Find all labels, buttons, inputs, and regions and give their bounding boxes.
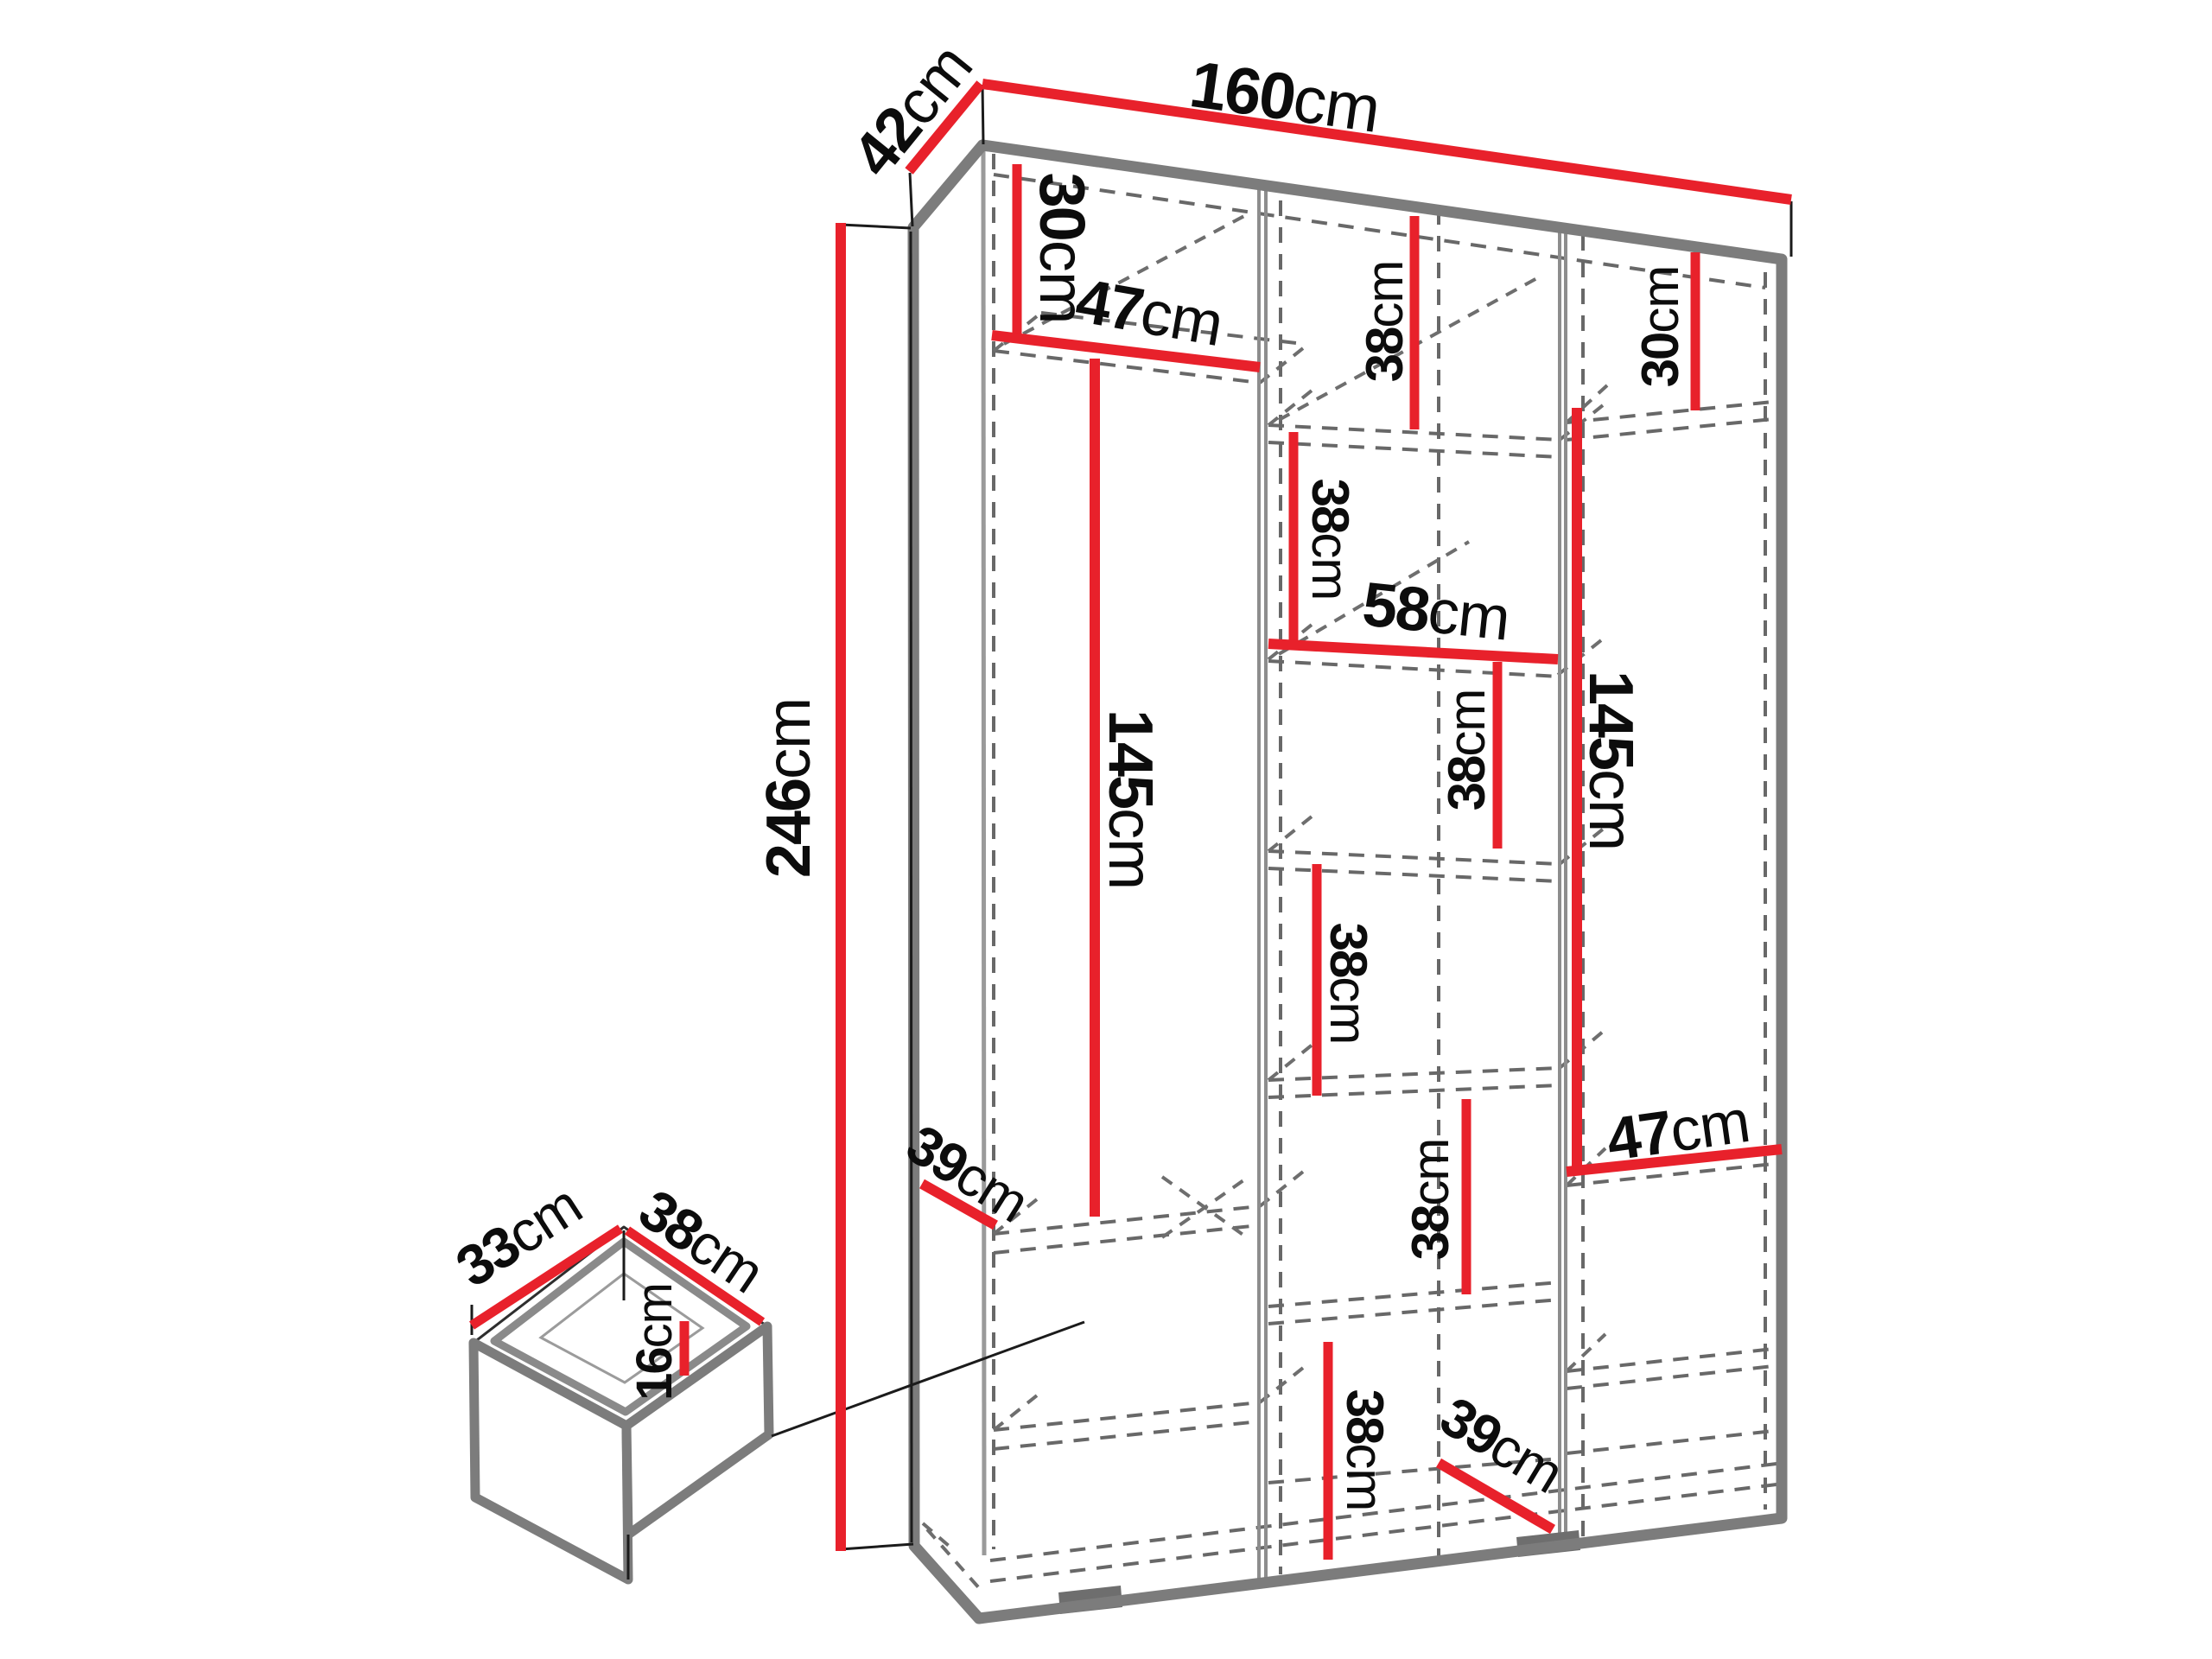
dim-right-shelf-label: 47cm [1603, 1087, 1753, 1173]
dim-width-label: 160cm [1185, 48, 1384, 147]
dim-mid-shelf-line [1268, 644, 1558, 659]
dim-width-line [982, 84, 1791, 200]
dim-mid-s3-label: 38cm [1438, 690, 1496, 811]
dim-right-hang-label: 145cm [1576, 671, 1645, 850]
dimension-labels: 160cm 42cm 246cm 30cm 47cm 145cm 39cm 38… [445, 32, 1754, 1511]
wardrobe-dimension-diagram: 160cm 42cm 246cm 30cm 47cm 145cm 39cm 38… [0, 0, 2212, 1659]
dim-mid-s1-label: 38cm [1356, 261, 1414, 383]
diagram-stage: 160cm 42cm 246cm 30cm 47cm 145cm 39cm 38… [0, 0, 2212, 1659]
dim-right-top-label: 30cm [1631, 266, 1689, 388]
dim-mid-s4-label: 38cm [1320, 923, 1378, 1045]
dim-mid-s2-label: 38cm [1302, 479, 1360, 601]
dim-mid-s5-label: 38cm [1402, 1139, 1459, 1261]
back-left-edge [983, 149, 984, 1555]
dim-mid-shelf-label: 58cm [1359, 569, 1513, 653]
drawer-leader-line [772, 1322, 1084, 1436]
dim-mid-s6-label: 38cm [1337, 1389, 1395, 1511]
dim-drawer-height-label: 16cm [626, 1283, 683, 1401]
dim-left-hang-label: 145cm [1096, 709, 1165, 889]
front-left-accent [911, 232, 912, 1542]
dim-height-label: 246cm [754, 698, 823, 878]
dim-mid-depth-label: 39cm [1430, 1384, 1573, 1504]
